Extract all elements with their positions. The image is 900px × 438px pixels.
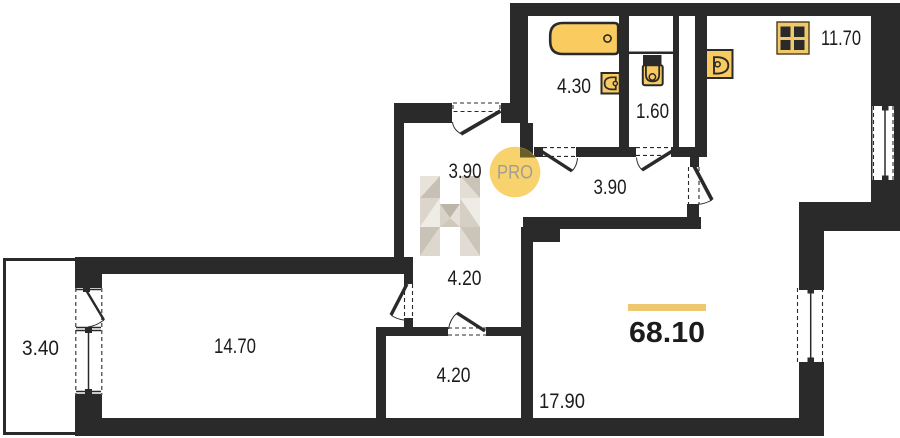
svg-text:14.70: 14.70 <box>214 335 256 358</box>
svg-text:3.90: 3.90 <box>594 176 627 199</box>
svg-text:4.30: 4.30 <box>557 75 591 98</box>
svg-text:3.90: 3.90 <box>449 160 482 183</box>
svg-text:4.20: 4.20 <box>448 267 482 290</box>
svg-text:17.90: 17.90 <box>539 390 585 413</box>
svg-text:PRO: PRO <box>497 162 533 184</box>
svg-text:4.20: 4.20 <box>437 364 471 387</box>
svg-text:1.60: 1.60 <box>636 100 669 123</box>
svg-text:3.40: 3.40 <box>22 337 59 360</box>
svg-text:11.70: 11.70 <box>821 27 861 50</box>
svg-text:68.10: 68.10 <box>629 317 705 349</box>
